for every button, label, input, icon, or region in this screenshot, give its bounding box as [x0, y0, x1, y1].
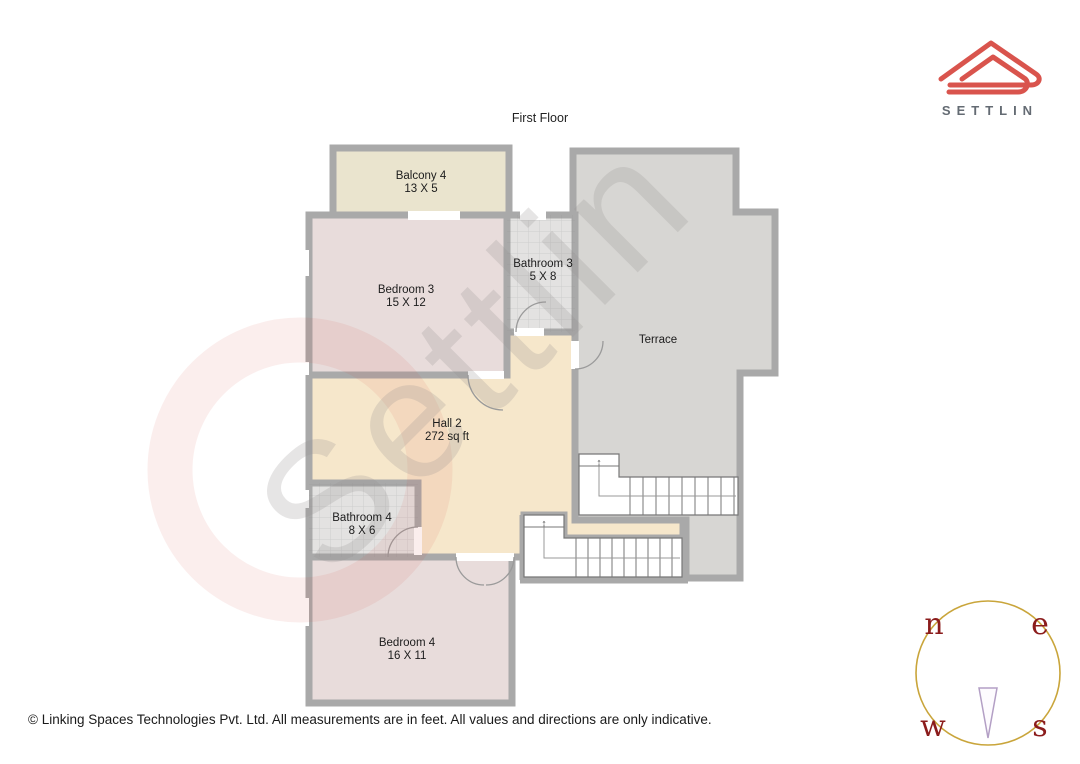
window-opening [302, 250, 309, 276]
bathroom4-dims: 8 X 6 [349, 525, 376, 537]
balcony-dims: 13 X 5 [404, 183, 437, 195]
floor-plan-page: First Floor SETTLIN [0, 0, 1080, 764]
up-arrow-icon: ↑ [596, 457, 602, 469]
door-opening [456, 553, 514, 561]
bathroom4-label: Bathroom 4 [332, 512, 392, 524]
up-arrow-icon: ↑ [541, 518, 547, 530]
bedroom4-dims: 16 X 11 [388, 650, 427, 662]
terrace-label: Terrace [639, 334, 677, 346]
compass-needle-icon [979, 688, 997, 738]
floor-plan: ↑ ↑ Settlin Balcony 4 13 X 5 Bedroo [0, 0, 1080, 764]
window-opening [302, 362, 309, 375]
bedroom3-label: Bedroom 3 [378, 284, 434, 296]
bathroom3-label: Bathroom 3 [513, 258, 572, 270]
footer-copyright: © Linking Spaces Technologies Pvt. Ltd. … [28, 712, 712, 727]
compass-east-label: e [1031, 607, 1049, 642]
compass-west-label: w [920, 709, 946, 744]
hall-label: Hall 2 [432, 418, 461, 430]
bedroom4-label: Bedroom 4 [379, 637, 436, 649]
compass-south-label: s [1032, 709, 1047, 744]
door-opening [408, 211, 460, 220]
bedroom3-dims: 15 X 12 [386, 297, 426, 309]
bathroom3-dims: 5 X 8 [530, 271, 557, 283]
compass-north-label: n [924, 607, 943, 642]
balcony-label: Balcony 4 [396, 170, 447, 182]
hall-dims: 272 sq ft [425, 431, 470, 443]
compass: n e w s [916, 601, 1060, 745]
